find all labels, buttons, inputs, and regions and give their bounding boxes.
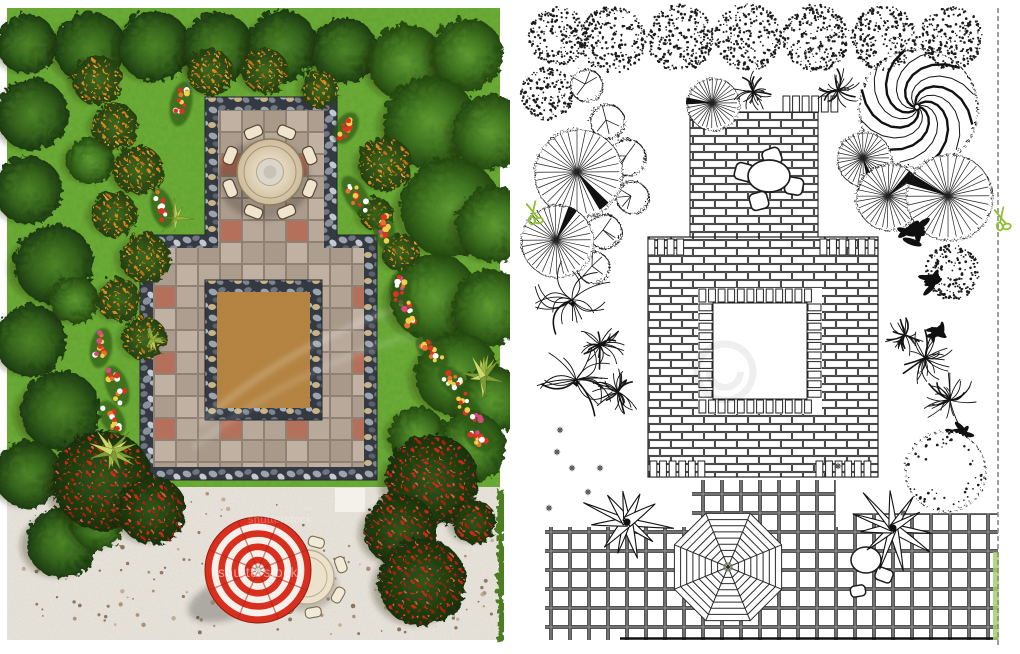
dot	[570, 27, 573, 30]
dot	[694, 38, 697, 41]
dot	[980, 474, 983, 477]
dot	[878, 27, 881, 30]
dot	[972, 288, 974, 290]
dot	[814, 5, 816, 7]
dot	[789, 52, 792, 55]
dot	[697, 9, 699, 11]
dot	[571, 100, 572, 101]
dot	[946, 248, 949, 251]
dot	[542, 67, 545, 70]
dot	[530, 79, 533, 82]
dot	[763, 26, 765, 28]
dot	[703, 33, 705, 35]
dot	[825, 36, 826, 37]
dot	[569, 40, 572, 43]
dot	[852, 41, 854, 43]
dot	[717, 42, 720, 45]
dot	[952, 9, 954, 11]
flower-dot	[96, 338, 102, 344]
dot	[855, 26, 858, 29]
dot	[678, 17, 679, 18]
dot	[719, 24, 721, 26]
dot	[914, 453, 917, 456]
dot	[797, 43, 799, 45]
dot	[681, 16, 684, 19]
dot	[575, 13, 577, 15]
dot	[941, 36, 942, 37]
dot	[628, 59, 631, 62]
dot	[883, 25, 885, 27]
brick	[808, 371, 821, 378]
dot	[904, 12, 907, 15]
dot	[676, 18, 678, 20]
dot	[727, 36, 729, 38]
dot	[859, 56, 862, 59]
dot	[859, 21, 862, 24]
dot	[966, 294, 968, 296]
dot	[717, 28, 719, 30]
dot	[751, 61, 754, 64]
dot	[729, 59, 731, 61]
dot	[910, 50, 912, 52]
dot	[751, 10, 752, 11]
dot	[667, 21, 670, 24]
dot	[960, 297, 961, 298]
dot	[756, 15, 758, 17]
dot	[743, 46, 745, 48]
dot	[689, 17, 691, 19]
dot	[531, 74, 533, 76]
dot	[551, 111, 552, 112]
dot	[977, 38, 979, 40]
dot	[642, 45, 644, 47]
dot	[973, 15, 975, 17]
dot	[538, 95, 539, 96]
flower-mark-icon	[554, 449, 560, 455]
dot	[893, 15, 895, 17]
dot	[555, 6, 557, 8]
dot	[592, 64, 594, 66]
dot	[917, 455, 919, 457]
dot	[649, 50, 651, 52]
dot	[963, 284, 964, 285]
dot	[831, 65, 833, 67]
dot	[563, 102, 566, 105]
dot	[939, 284, 940, 285]
dot	[809, 63, 811, 65]
dot	[742, 67, 745, 70]
dot	[744, 52, 746, 54]
dot	[637, 38, 639, 40]
dot	[709, 47, 710, 48]
dot	[692, 65, 694, 67]
dot	[896, 42, 898, 44]
dot	[842, 33, 845, 36]
dot	[636, 20, 638, 22]
flower-mark-icon	[585, 489, 591, 495]
dot	[881, 7, 883, 9]
dot	[883, 43, 885, 45]
dot	[747, 13, 750, 16]
dot	[805, 9, 807, 11]
dot	[668, 34, 670, 36]
dot	[609, 65, 611, 67]
brick	[808, 323, 821, 330]
chair	[748, 190, 770, 211]
dot	[670, 19, 672, 21]
dot	[694, 28, 697, 31]
dot	[950, 297, 952, 299]
dot	[690, 54, 693, 57]
dot	[834, 32, 836, 34]
dot	[908, 477, 909, 478]
dot	[809, 12, 811, 14]
dot	[638, 34, 640, 36]
dot	[820, 41, 822, 43]
dot	[880, 17, 882, 19]
dot	[735, 5, 736, 6]
dot	[571, 95, 573, 97]
dot	[939, 47, 941, 49]
dot	[602, 65, 604, 67]
dot	[835, 61, 836, 62]
flower-dot	[477, 415, 482, 420]
center	[559, 429, 561, 431]
dot	[775, 44, 778, 47]
dot	[909, 488, 911, 490]
dot	[936, 252, 938, 254]
dot	[559, 73, 561, 75]
dot	[853, 44, 855, 46]
flower-dot	[115, 426, 120, 431]
dot	[730, 52, 732, 54]
dot	[550, 71, 553, 74]
dot	[666, 36, 668, 38]
dot	[906, 16, 908, 18]
dot	[893, 11, 895, 13]
dot	[827, 36, 830, 39]
dot	[955, 262, 956, 263]
dot	[813, 68, 814, 69]
flower-dot	[183, 104, 187, 108]
dot	[892, 6, 894, 8]
dot	[904, 41, 905, 42]
dot	[537, 34, 540, 37]
dot	[956, 48, 958, 50]
dot	[541, 119, 542, 120]
flower-dot	[456, 382, 460, 386]
dot	[542, 116, 544, 118]
dot	[717, 45, 720, 48]
dot	[864, 38, 867, 41]
flower-dot	[353, 193, 359, 199]
dot	[596, 45, 597, 46]
dot	[768, 49, 770, 51]
dot	[733, 63, 735, 65]
dot	[839, 32, 840, 33]
dot	[825, 61, 827, 63]
dot	[778, 38, 780, 40]
dot	[935, 61, 937, 63]
dot	[877, 11, 880, 14]
dot	[774, 56, 775, 57]
dot	[862, 24, 864, 26]
dot	[806, 68, 808, 70]
dot	[703, 26, 705, 28]
flower-dot	[401, 306, 407, 312]
dot	[820, 43, 822, 45]
dot	[972, 258, 973, 259]
dot	[553, 85, 556, 88]
dot	[542, 97, 544, 99]
flower-dot	[342, 127, 347, 132]
dot	[629, 56, 632, 59]
dot	[543, 58, 545, 60]
dot	[773, 34, 776, 37]
dot	[560, 30, 562, 32]
dot	[972, 488, 974, 490]
dot	[867, 49, 868, 50]
dot	[923, 500, 925, 502]
dot	[856, 49, 859, 52]
dot	[597, 65, 598, 66]
flower-dot	[379, 230, 383, 234]
dot	[963, 55, 964, 56]
dot	[841, 43, 843, 45]
brick	[795, 400, 802, 413]
dot	[615, 68, 616, 69]
dot	[958, 8, 960, 10]
dot	[579, 43, 581, 45]
dot	[589, 48, 590, 49]
dot	[818, 19, 819, 20]
flower-dot	[442, 377, 447, 382]
dot	[945, 296, 948, 299]
dot	[862, 51, 864, 53]
dot	[588, 42, 589, 43]
dot	[613, 24, 615, 26]
dot	[585, 54, 587, 56]
dot	[727, 47, 729, 49]
dot	[883, 20, 885, 22]
dot	[575, 30, 578, 33]
dot	[943, 294, 945, 296]
dot	[758, 36, 761, 39]
dot	[623, 25, 625, 27]
dot	[557, 96, 559, 98]
dot	[528, 97, 530, 99]
dot	[583, 50, 585, 52]
dot	[939, 41, 941, 43]
dot	[810, 22, 812, 24]
dot	[712, 43, 713, 44]
dot	[590, 34, 592, 36]
dot	[931, 23, 933, 25]
dot	[563, 47, 565, 49]
brick	[757, 400, 764, 413]
dot	[865, 61, 867, 63]
dot	[536, 72, 537, 73]
dot	[655, 55, 657, 57]
dot	[944, 9, 946, 11]
dot	[545, 11, 547, 13]
flower-dot	[428, 345, 433, 350]
dot	[694, 18, 696, 20]
dot	[659, 13, 660, 14]
dot	[974, 266, 976, 268]
dot	[664, 60, 665, 61]
dot	[977, 23, 979, 25]
dot	[763, 63, 765, 65]
dot	[773, 19, 774, 20]
dot	[662, 56, 665, 59]
dot	[530, 28, 532, 30]
dot	[558, 100, 561, 103]
dot	[684, 59, 686, 61]
dot	[858, 28, 859, 29]
dot	[893, 37, 896, 40]
dot	[718, 38, 719, 39]
brick	[669, 461, 676, 477]
dot	[805, 66, 807, 68]
dot	[620, 39, 622, 41]
dot	[577, 24, 579, 26]
dot	[867, 13, 868, 14]
dot	[583, 25, 585, 27]
dot	[796, 16, 798, 18]
dot	[641, 28, 643, 30]
dot	[854, 34, 856, 36]
dot	[978, 276, 980, 278]
dot	[615, 31, 617, 33]
dot	[947, 38, 948, 39]
dot	[561, 16, 563, 18]
dot	[960, 290, 963, 293]
dot	[975, 56, 977, 58]
dot	[805, 50, 806, 51]
dot	[534, 101, 537, 104]
dot	[556, 81, 558, 83]
dot	[968, 254, 969, 255]
dot	[817, 16, 819, 18]
dot	[944, 247, 946, 249]
dot	[968, 291, 970, 293]
dot	[783, 45, 785, 47]
dot	[932, 255, 933, 256]
flower-dot	[458, 405, 462, 409]
dot	[935, 14, 938, 17]
dot	[771, 54, 773, 56]
brick	[854, 461, 861, 477]
dot	[974, 271, 977, 274]
dot	[755, 6, 757, 8]
dot	[896, 8, 898, 10]
dot	[687, 29, 690, 32]
brick	[835, 461, 842, 477]
dot	[726, 58, 728, 60]
dot	[535, 74, 537, 76]
dot	[936, 259, 938, 261]
dot	[891, 25, 894, 28]
dot	[890, 38, 891, 39]
brick	[812, 96, 819, 112]
dot	[826, 56, 828, 58]
dot	[752, 48, 753, 49]
dot	[582, 28, 583, 29]
dot	[930, 270, 932, 272]
dot	[690, 36, 692, 38]
dot	[550, 96, 552, 98]
dot	[834, 26, 836, 28]
dot	[925, 265, 927, 267]
brick	[845, 461, 852, 477]
dot	[535, 19, 537, 21]
dot	[570, 103, 572, 105]
dot	[615, 58, 617, 60]
dot	[777, 24, 779, 26]
flower-dot	[463, 392, 467, 396]
dot	[964, 491, 967, 494]
dot	[715, 43, 717, 45]
dot	[929, 15, 931, 17]
dot	[839, 60, 840, 61]
dot	[668, 66, 670, 68]
dot	[696, 26, 697, 27]
flower-dot	[468, 432, 473, 437]
dot	[808, 42, 810, 44]
dot	[663, 62, 665, 64]
dot	[964, 25, 966, 27]
dot	[650, 53, 652, 55]
dot	[730, 38, 731, 39]
dot	[700, 12, 701, 13]
dot	[812, 12, 815, 15]
dot	[951, 261, 953, 263]
dot	[938, 288, 941, 291]
dot	[799, 23, 802, 26]
dot	[848, 30, 849, 31]
dot	[856, 23, 858, 25]
dot	[668, 30, 671, 33]
dot	[563, 61, 564, 62]
dot	[601, 47, 603, 49]
dot	[574, 28, 576, 30]
dot	[900, 11, 902, 13]
dot	[581, 25, 583, 27]
dot	[922, 22, 924, 24]
dot	[536, 31, 537, 32]
dot	[726, 24, 727, 25]
dot	[974, 284, 975, 285]
dot	[689, 58, 691, 60]
dot	[972, 256, 973, 257]
dot	[653, 25, 655, 27]
flower-dot	[464, 407, 470, 413]
dot	[552, 105, 555, 108]
dot	[924, 25, 926, 27]
dot	[539, 112, 542, 115]
dot	[774, 49, 776, 51]
dot	[555, 31, 556, 32]
dot	[618, 66, 619, 67]
dot	[560, 81, 563, 84]
dot	[547, 83, 550, 86]
dot	[943, 249, 945, 251]
dot	[976, 277, 978, 279]
dot	[733, 25, 734, 26]
dot	[805, 57, 807, 59]
dot	[566, 12, 569, 15]
